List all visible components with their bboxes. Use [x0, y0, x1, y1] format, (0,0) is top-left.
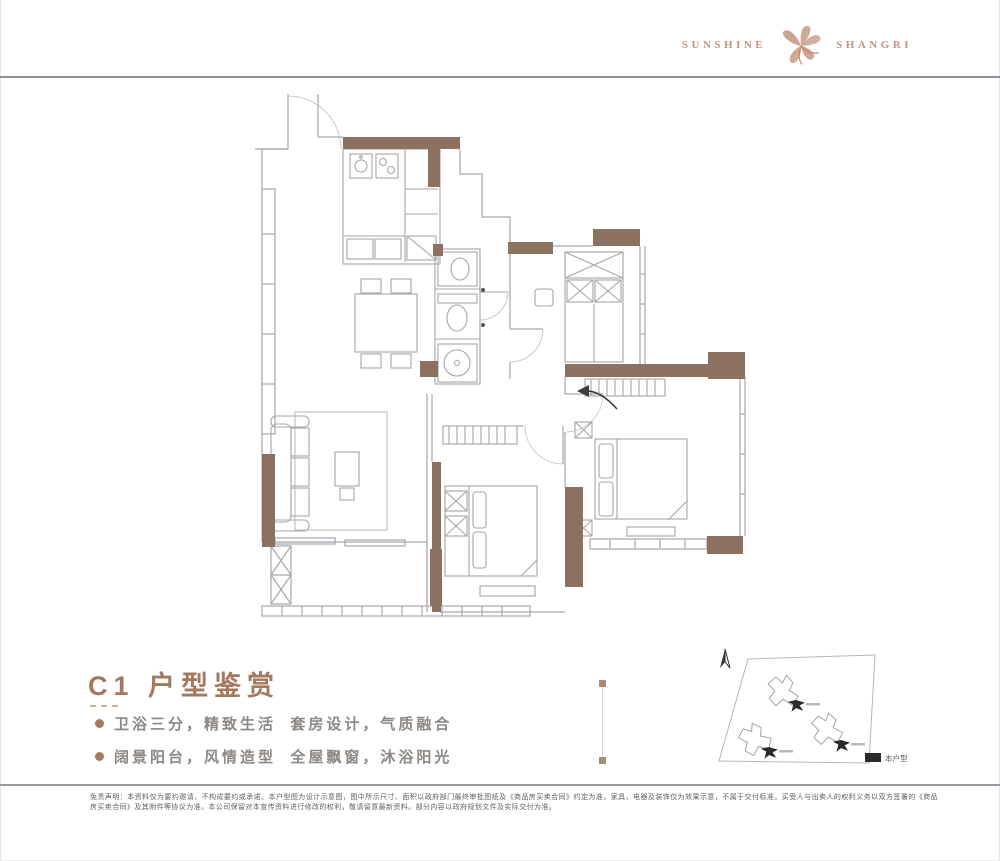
divider-endcap [599, 757, 606, 764]
floor-plan [255, 93, 750, 625]
header-divider [0, 76, 1000, 78]
site-map: 本户型 [703, 643, 941, 785]
bullet-dot [95, 719, 104, 728]
brand-logo: SUNSHINE SHANGRI [682, 22, 912, 68]
feature-text: 阔景阳台，风情造型 全屋飘窗，沐浴阳光 [114, 746, 452, 767]
legend-label: 本户型 [885, 753, 908, 763]
floor-plan-walls [255, 94, 745, 616]
building-footprints [736, 672, 844, 758]
dining-area [355, 279, 417, 368]
divider-endcap [599, 680, 606, 687]
brand-text-right: SHANGRI [836, 39, 912, 51]
map-legend: 本户型 [865, 753, 908, 763]
footer-divider [0, 784, 1000, 786]
bedroom-top-right [535, 252, 623, 362]
site-boundary [719, 655, 875, 763]
title-underline [90, 705, 118, 707]
vertical-divider [602, 684, 603, 760]
feature-bullet-2: 阔景阳台，风情造型 全屋飘窗，沐浴阳光 [95, 746, 452, 767]
section-title: C1 户型鉴赏 [88, 664, 280, 703]
brand-text-left: SUNSHINE [682, 39, 766, 51]
feature-text: 卫浴三分，精致生活 套房设计，气质融合 [114, 713, 452, 734]
kitchen [343, 149, 440, 264]
disclaimer-text: 免责声明：本资料仅为要约邀请，不构成要约或承诺。本户型图为设计示意图，图中所示尺… [90, 793, 938, 813]
feature-bullet-1: 卫浴三分，精致生活 套房设计，气质融合 [95, 713, 452, 734]
living-room [271, 412, 387, 531]
entry-arrow [577, 385, 617, 409]
bathroom [435, 249, 508, 384]
legend-swatch [865, 753, 881, 762]
bedroom-right [575, 379, 687, 536]
north-arrow-icon [720, 649, 730, 668]
bedroom-center [443, 426, 537, 596]
bullet-dot [95, 752, 104, 761]
flower-emblem-icon [774, 22, 828, 68]
